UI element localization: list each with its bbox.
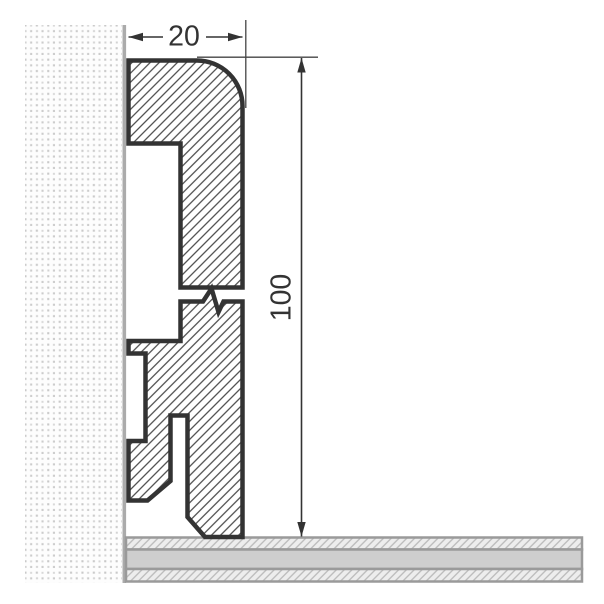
drawing-svg: 20 100	[0, 0, 604, 604]
technical-drawing: 20 100	[0, 0, 604, 604]
height-arrow-top-icon	[297, 58, 305, 73]
skirting-profile-lower	[129, 289, 243, 538]
skirting-profile-upper	[129, 61, 243, 288]
wall-section	[25, 25, 126, 583]
width-arrow-left-icon	[129, 33, 144, 41]
wall-surface-line	[123, 25, 127, 583]
floor-section	[126, 538, 582, 582]
height-arrow-bottom-icon	[297, 522, 305, 537]
floor-middle-layer	[126, 550, 582, 570]
height-dim-label: 100	[266, 274, 298, 322]
width-arrow-right-icon	[228, 33, 243, 41]
wall-stipple-area	[25, 25, 122, 583]
floor-top-layer	[126, 538, 582, 550]
floor-bottom-layer	[126, 569, 582, 582]
width-dim-label: 20	[168, 21, 200, 53]
